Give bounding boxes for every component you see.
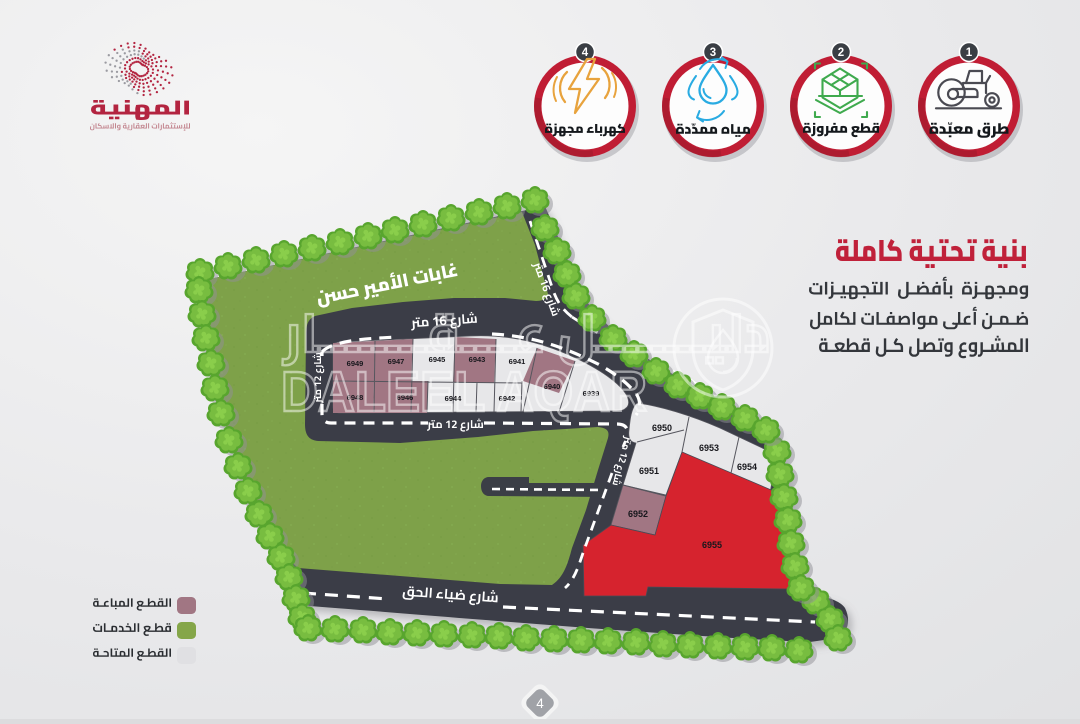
svg-text:DALEEL AQAR: DALEEL AQAR bbox=[281, 360, 647, 424]
svg-text:6950: 6950 bbox=[652, 423, 672, 433]
svg-text:6952: 6952 bbox=[628, 509, 648, 519]
svg-text:4: 4 bbox=[582, 47, 589, 59]
svg-text:1: 1 bbox=[966, 47, 973, 59]
svg-text:4: 4 bbox=[536, 696, 544, 711]
svg-text:3: 3 bbox=[710, 47, 716, 59]
svg-text:2: 2 bbox=[838, 47, 844, 59]
svg-text:6953: 6953 bbox=[699, 443, 719, 453]
svg-text:6955: 6955 bbox=[702, 540, 722, 550]
svg-text:6951: 6951 bbox=[639, 466, 659, 476]
svg-text:6954: 6954 bbox=[737, 462, 757, 472]
